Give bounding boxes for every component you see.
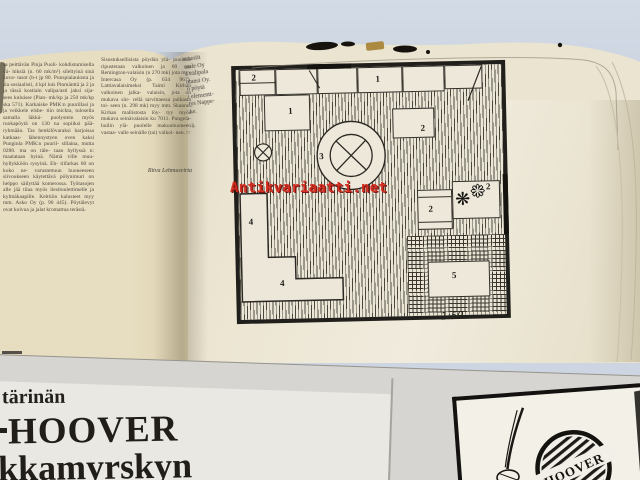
page-edge-shading [588, 100, 640, 362]
plan-scale-label: 1:50 [441, 310, 464, 323]
plan-label-counter-row: 1 [375, 75, 380, 84]
plan-label-bench-upper: 4 [249, 218, 254, 227]
headline-brand-line: HOOVER [8, 411, 179, 451]
article-end-mark: □ [186, 131, 189, 136]
column-end-rule [2, 351, 22, 354]
plan-label-wall-cabinet: 2 [420, 124, 425, 133]
hoover-ad-box: HOOVER [452, 381, 640, 480]
plan-label-corner-upper: 2 [251, 74, 256, 83]
plan-label-pantry: 5 [452, 271, 457, 280]
plan-label-table: 3 [319, 152, 324, 161]
plan-label-bench-lower: 4 [280, 279, 285, 288]
headline-small-line: tärinän [2, 386, 66, 410]
clipped-letter-fragment [0, 428, 7, 433]
plan-label-plant-unit: 2 [486, 182, 491, 191]
article-byline: Ritva Lehmusvirta [112, 168, 192, 174]
photo-of-magazine-spread: sa peittävän Pinja Puoli- kohdistumisell… [0, 0, 640, 480]
headline-large-line: kkamyrskyn [0, 447, 192, 480]
watermark: Antikvariaatti.net [230, 180, 387, 196]
vacuum-cleaner-illustration [492, 408, 528, 480]
article-text-column-2: Sisustuksellisista pöydän ylä- puolelle … [101, 57, 191, 179]
article-text-column-1: sa peittävän Pinja Puoli- kohdistumisell… [3, 62, 94, 356]
hoover-logo: HOOVER [527, 429, 621, 480]
plan-label-right-unit: 2 [428, 205, 433, 214]
ad-dark-panel [634, 385, 640, 480]
plan-label-corner-unit: 1 [288, 107, 293, 116]
hoover-ad-graphic: HOOVER [456, 385, 640, 480]
article-text: Sisustuksellisista pöydän ylä- puolelle … [101, 57, 191, 136]
